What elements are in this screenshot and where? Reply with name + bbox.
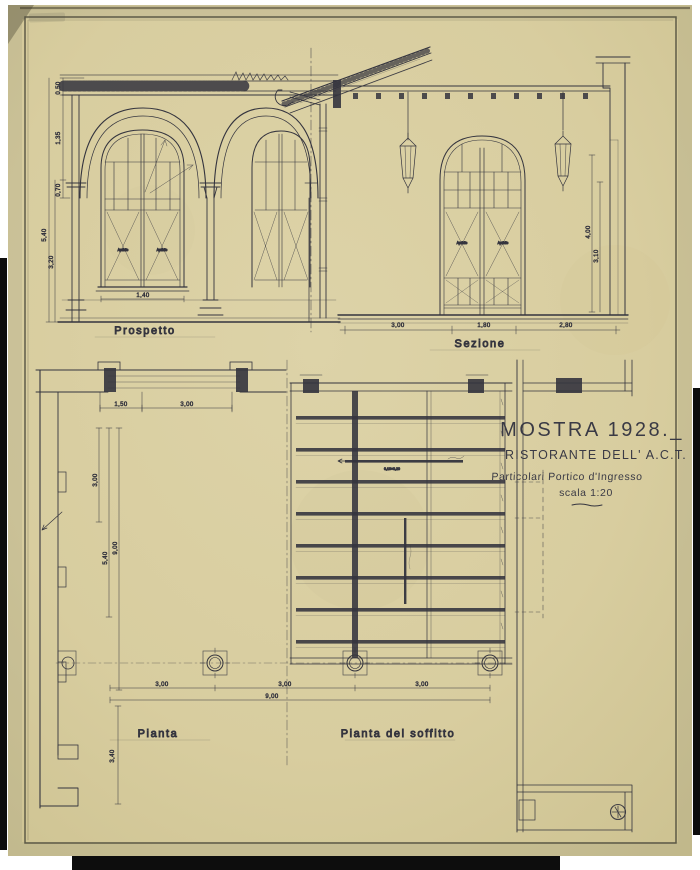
scanned-drawing-photo: Apribile Apribile 0,50 1,35 0,70 5,40 3,… — [0, 0, 700, 870]
tie-rod-vertical — [404, 518, 406, 604]
dim-label: 1,50 — [114, 402, 128, 408]
ceiling-beam-vertical — [352, 391, 358, 658]
view-label-prospetto: Prospetto — [114, 325, 175, 337]
dim-label: 2,80 — [559, 323, 573, 329]
photo-edge-right — [693, 388, 700, 835]
dim-label: 0,50 — [56, 81, 62, 95]
dim-label: 1,80 — [477, 323, 491, 329]
sheet-subtitle: RISTORANTE DELL' A.C.T. — [505, 448, 687, 462]
door-jamb — [236, 368, 248, 392]
dim-label: 3,00 — [278, 682, 292, 688]
view-label-sezione: Sezione — [455, 338, 506, 350]
dim-label: 3,00 — [180, 402, 194, 408]
door-jamb — [104, 368, 116, 392]
window-pane-label: Apribile — [157, 248, 168, 252]
dim-label: 3,10 — [594, 249, 600, 263]
circled-cross-icon — [611, 805, 626, 820]
tie-rod-horizontal — [345, 460, 463, 463]
dim-label: 3,00 — [415, 682, 429, 688]
dim-label: 3,00 — [93, 473, 99, 487]
dim-label: 1,35 — [56, 131, 62, 145]
wall-pilaster — [556, 378, 582, 393]
dim-label: 1,40 — [136, 293, 150, 299]
window-pane-label: Apribile — [118, 248, 129, 252]
window-pane-label: Apribile — [498, 241, 509, 245]
dim-label: 3,20 — [49, 255, 55, 269]
drawing-sheet: Apribile Apribile 0,50 1,35 0,70 5,40 3,… — [0, 0, 700, 870]
sheet-scale: scala 1:20 — [559, 487, 613, 499]
dim-label: 5,40 — [103, 551, 109, 565]
roof-bracket — [333, 80, 341, 108]
dim-label: 3,00 — [391, 323, 405, 329]
dim-label: 9,00 — [113, 541, 119, 555]
ceiling-jamb — [468, 379, 484, 393]
dim-label: 3,00 — [155, 682, 169, 688]
dim-label: 5,40 — [42, 228, 48, 242]
window-pane-label: Apribile — [457, 241, 468, 245]
dim-label: 0,70 — [56, 183, 62, 197]
view-label-soffitto: Pianta del soffitto — [341, 728, 456, 740]
sheet-description: Particolari Portico d'Ingresso — [491, 471, 643, 483]
dim-label: 4,00 — [586, 225, 592, 239]
view-label-pianta: Pianta — [138, 728, 179, 740]
dim-label: 3,40 — [110, 749, 116, 763]
sheet-title: MOSTRA 1928._ — [500, 419, 684, 441]
dim-label: 9,00 — [265, 694, 279, 700]
beam-size-note: 0,10×0,20 — [384, 467, 400, 471]
photo-edge-left — [0, 258, 7, 850]
ceiling-jamb — [303, 379, 319, 393]
